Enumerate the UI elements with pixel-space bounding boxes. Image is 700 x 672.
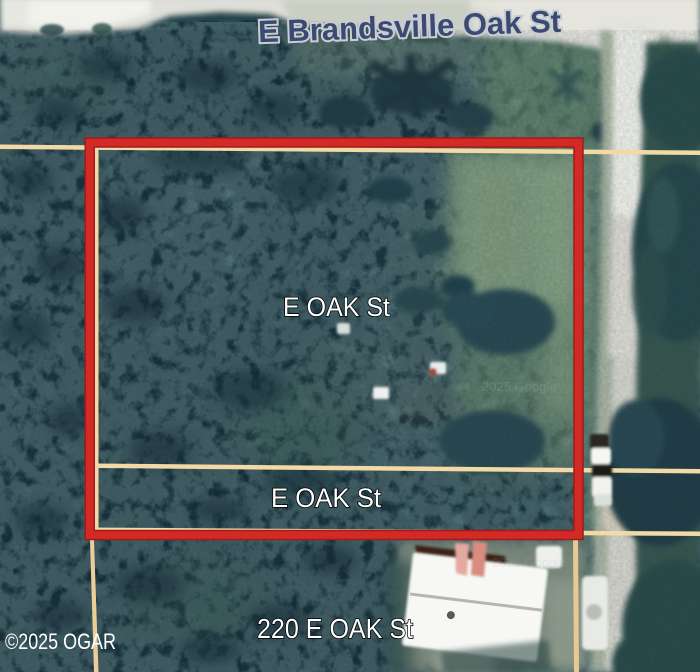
svg-text:©2025 OGAR: ©2025 OGAR — [5, 629, 116, 654]
svg-text:E OAK St: E OAK St — [283, 292, 390, 322]
svg-text:2025 Google: 2025 Google — [482, 379, 556, 394]
svg-text:2025 Google: 2025 Google — [492, 555, 566, 570]
svg-text:E OAK St: E OAK St — [271, 483, 381, 513]
svg-text:220 E OAK St: 220 E OAK St — [257, 613, 413, 644]
